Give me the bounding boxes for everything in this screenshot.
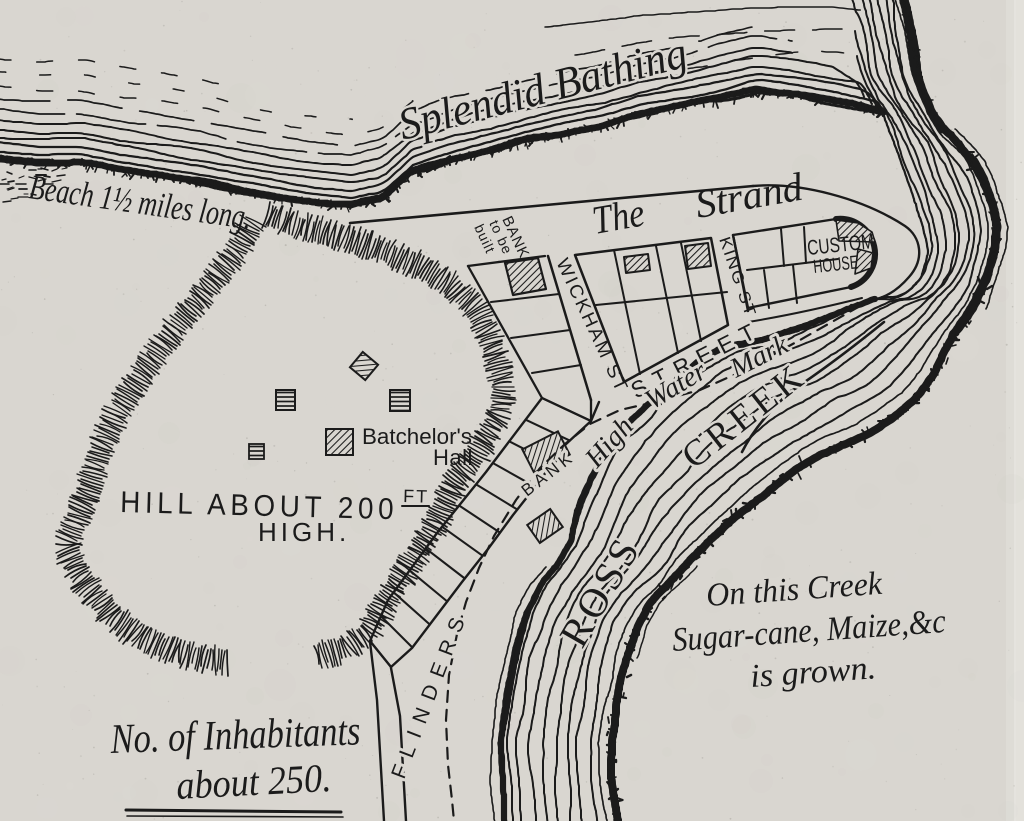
svg-text:The: The	[589, 190, 648, 243]
svg-text:Hall: Hall	[433, 445, 473, 470]
svg-text:HIGH.: HIGH.	[258, 517, 350, 547]
svg-text:FT: FT	[403, 486, 430, 507]
svg-text:about 250.: about 250.	[175, 755, 332, 808]
